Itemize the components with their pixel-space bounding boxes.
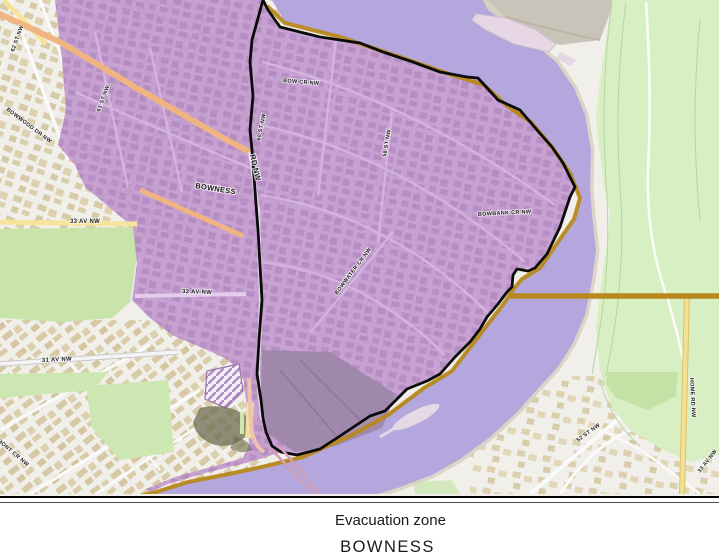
road-33av	[0, 222, 137, 224]
green-sliver	[240, 412, 244, 434]
caption-zone-name: BOWNESS	[28, 538, 719, 557]
evacuation-zone-map: 62 ST NW 61 ST NW BOWWOOD DR NW BOWNESS …	[0, 0, 719, 498]
street-label-33av: 33 AV NW	[70, 219, 100, 225]
caption-divider	[0, 502, 719, 503]
map-canvas: 62 ST NW 61 ST NW BOWWOOD DR NW BOWNESS …	[0, 0, 719, 494]
street-label-32av: 32 AV NW	[182, 289, 212, 296]
caption-title: Evacuation zone	[31, 512, 719, 529]
caption: Evacuation zone BOWNESS	[0, 512, 719, 557]
park-left	[0, 227, 141, 322]
